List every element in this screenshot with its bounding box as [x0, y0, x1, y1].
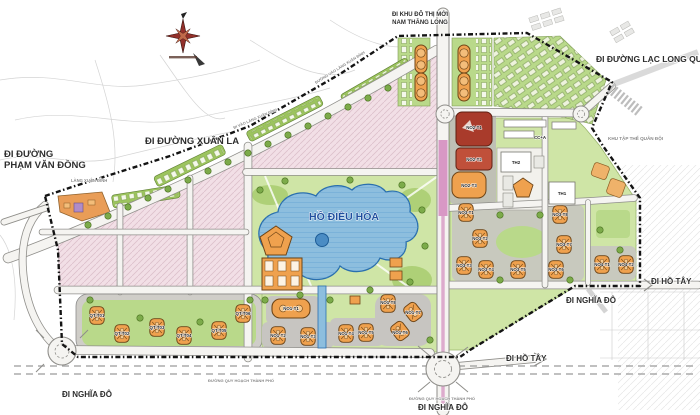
roundabout-top [436, 105, 454, 123]
plot-no1-t6: NO1-T6 [392, 330, 408, 335]
label-quy-hoach-1: ĐƯỜNG QUY HOẠCH THÀNH PHỐ [208, 378, 274, 383]
plot-th2: TH2 [512, 160, 521, 165]
plot-qt-t04: QT-T04 [177, 333, 192, 338]
southwest-qt-zone [76, 294, 262, 352]
plot-no1-t3: NO1-T3 [300, 334, 316, 339]
label-nghia-do-right: ĐI NGHĨA ĐÔ [566, 296, 616, 305]
label-nghia-do-bottom: ĐI NGHĨA ĐÔ [418, 403, 468, 412]
label-nam-thang-long-1: ĐI KHU ĐÔ THỊ MỚI [392, 10, 448, 18]
map-canvas: ĐI KHU ĐÔ THỊ MỚI NAM THĂNG LONG ĐI ĐƯỜN… [0, 0, 700, 415]
plot-qt-t03: QT-T03 [150, 325, 165, 330]
plot-no2-t3: NO2-T3 [461, 183, 477, 188]
label-pham-van-dong-2: PHẠM VĂN ĐỒNG [4, 159, 86, 171]
plot-no3-t3: NO3-T3 [456, 263, 472, 268]
label-khu-tap-the: KHU TẬP THỂ QUÂN ĐỘI [608, 134, 663, 141]
label-ho-tay-right: ĐI HỒ TÂY [651, 276, 692, 286]
plot-no4-t2: NO4-T2 [618, 262, 634, 267]
label-pham-van-dong-1: ĐI ĐƯỜNG [4, 148, 53, 160]
label-lac-long-quan: ĐI ĐƯỜNG LẠC LONG QUÂN [596, 53, 700, 64]
label-xuan-la: ĐI ĐƯỜNG XUÂN LA [145, 135, 239, 147]
plot-no1-t7: NO1-T7 [405, 310, 421, 315]
plot-no1-t4: NO1-T4 [338, 331, 354, 336]
plot-qt-t06: QT-T06 [236, 311, 251, 316]
label-nam-thang-long-2: NAM THĂNG LONG [392, 19, 448, 26]
plot-no3-t4: NO3-T4 [478, 267, 494, 272]
plot-no3-t2: NO3-T2 [472, 236, 488, 241]
park-canal [318, 286, 326, 348]
roundabout-top-east [573, 106, 589, 122]
label-ho-dieu-hoa: HỒ ĐIỀU HÒA [309, 210, 379, 223]
plot-cc-a: CC+A [534, 135, 547, 140]
label-ho-tay-bottom: ĐI HỒ TÂY [506, 353, 547, 363]
plot-no4-t1: NO4-T1 [594, 262, 610, 267]
plot-no1-t1: NO1-T1 [283, 306, 299, 311]
label-nghia-do-left: ĐI NGHĨA ĐÔ [62, 390, 112, 399]
plot-no3-t7: NO3-T7 [556, 242, 572, 247]
plot-no2-t2: NO2-T2 [466, 157, 482, 162]
roundabout-bottom-right [418, 346, 468, 392]
plot-no1-t2: NO1-T2 [270, 333, 286, 338]
plot-no3-t8: NO3-T8 [552, 212, 568, 217]
plot-th1: TH1 [558, 191, 567, 196]
plot-no1-t8: NO1-T8 [380, 300, 396, 305]
magenta-road-segment [439, 140, 448, 216]
plot-qt-t05: QT-T05 [212, 328, 227, 333]
plot-no3-t5: NO3-T5 [510, 267, 526, 272]
plot-no1-t5: NO1-T5 [358, 330, 374, 335]
plot-qt-t02: QT-T02 [115, 331, 130, 336]
plot-no3-t6: NO3-T6 [548, 267, 564, 272]
plot-no3-t1: NO3-T1 [458, 210, 474, 215]
plot-qt-t01: QT-T01 [90, 313, 105, 318]
masterplan-map: ĐI KHU ĐÔ THỊ MỚI NAM THĂNG LONG ĐI ĐƯỜN… [0, 0, 700, 415]
compass-rose-icon [166, 12, 205, 66]
label-quy-hoach-2: ĐƯỜNG QUY HOẠCH THÀNH PHỐ [409, 396, 475, 401]
label-duong-vao-lang: ĐƯỜNG VÀO LÀNG XUÂN ĐỈNH [314, 50, 366, 85]
plot-no2-t1: NO2-T1 [466, 125, 482, 130]
label-lang-xuan-dinh: LÀNG XUÂN ĐỈNH [71, 178, 107, 183]
